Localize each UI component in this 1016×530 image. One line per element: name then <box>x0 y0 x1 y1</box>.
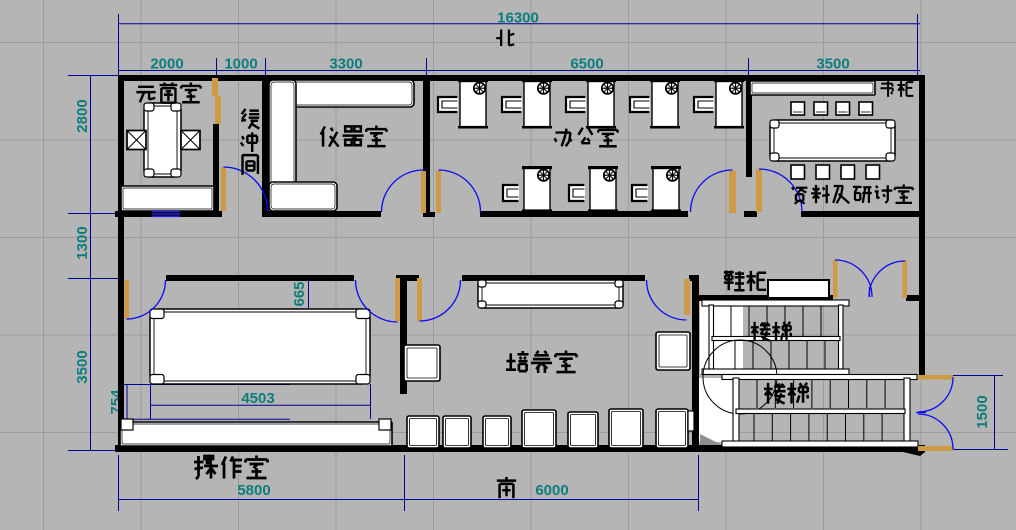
svg-text:5800: 5800 <box>237 482 270 499</box>
svg-text:6500: 6500 <box>570 56 603 73</box>
svg-text:1500: 1500 <box>974 395 991 428</box>
svg-text:665: 665 <box>291 281 308 306</box>
svg-text:16300: 16300 <box>497 10 539 27</box>
svg-text:3300: 3300 <box>329 56 362 73</box>
svg-text:4503: 4503 <box>241 390 274 407</box>
svg-text:3500: 3500 <box>74 350 91 383</box>
svg-text:2800: 2800 <box>74 99 91 132</box>
svg-text:2000: 2000 <box>150 56 183 73</box>
svg-text:6000: 6000 <box>535 482 568 499</box>
svg-text:1000: 1000 <box>224 56 257 73</box>
svg-text:3500: 3500 <box>816 56 849 73</box>
svg-text:1300: 1300 <box>74 226 91 259</box>
